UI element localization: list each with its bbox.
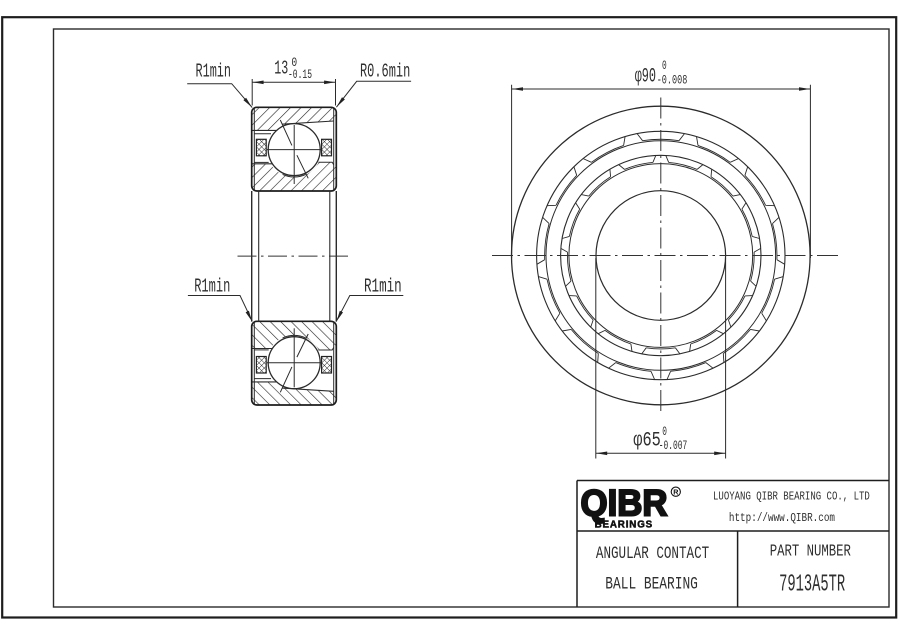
svg-text:QIBR: QIBR [581, 482, 668, 523]
svg-text:R0.6min: R0.6min [360, 61, 410, 83]
svg-text:13: 13 [274, 58, 288, 80]
svg-text:-0.008: -0.008 [657, 73, 688, 88]
svg-text:0: 0 [662, 58, 667, 73]
svg-text:φ65: φ65 [633, 430, 661, 453]
svg-text:http://www.QIBR.com: http://www.QIBR.com [729, 512, 835, 525]
svg-text:7913A5TR: 7913A5TR [779, 571, 845, 598]
svg-text:LUOYANG QIBR BEARING CO., LTD: LUOYANG QIBR BEARING CO., LTD [713, 491, 870, 504]
svg-text:R: R [673, 487, 679, 496]
svg-text:0: 0 [662, 424, 667, 439]
svg-text:φ90: φ90 [635, 66, 656, 89]
svg-text:R1min: R1min [196, 61, 232, 83]
svg-text:ANGULAR CONTACT: ANGULAR CONTACT [596, 544, 709, 564]
svg-text:-0.15: -0.15 [288, 67, 312, 82]
svg-text:R1min: R1min [194, 275, 230, 297]
svg-text:PART NUMBER: PART NUMBER [770, 543, 851, 562]
svg-text:BEARINGS: BEARINGS [595, 520, 653, 531]
svg-text:-0.007: -0.007 [659, 438, 688, 453]
svg-text:BALL BEARING: BALL BEARING [605, 574, 698, 594]
svg-text:R1min: R1min [364, 275, 402, 297]
